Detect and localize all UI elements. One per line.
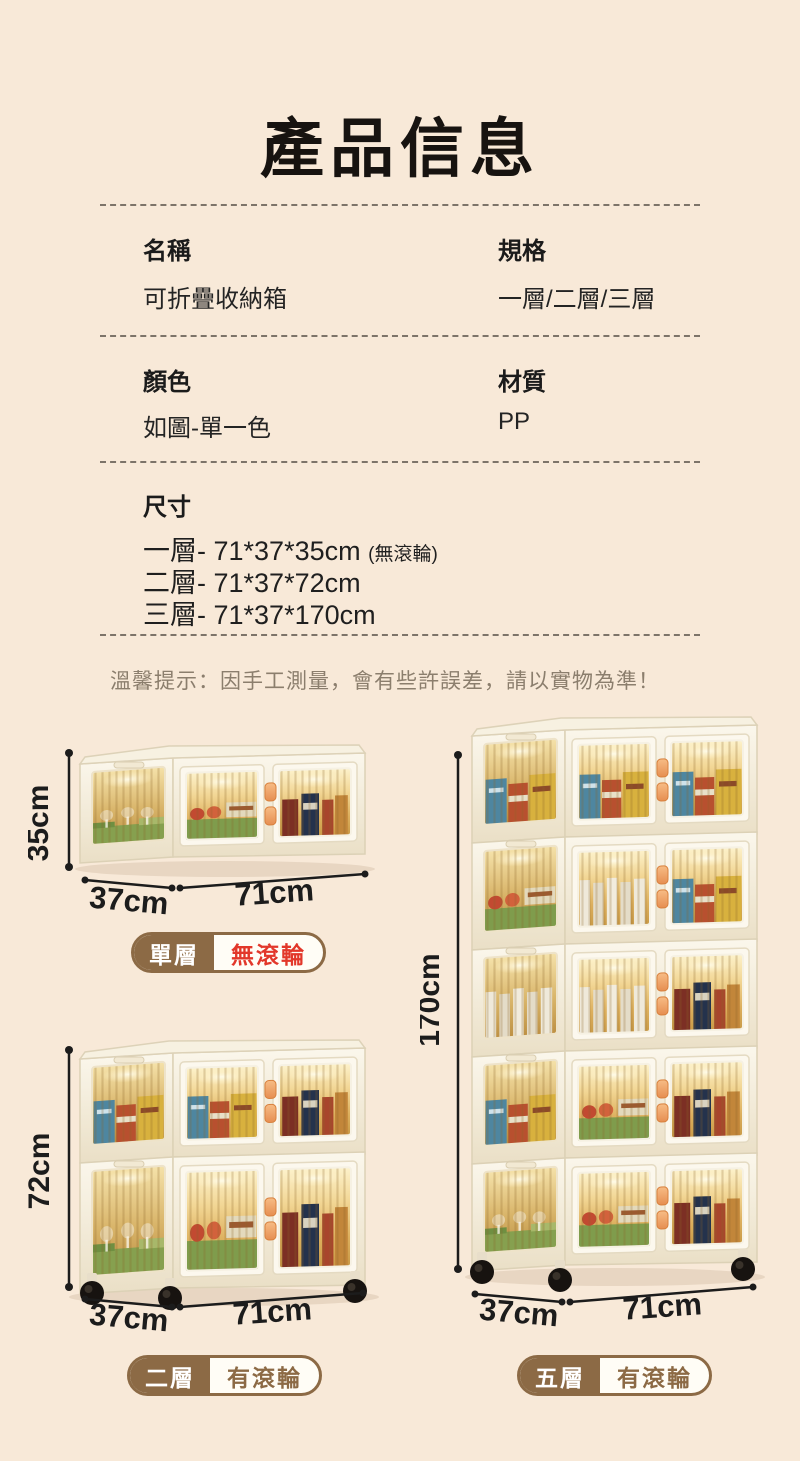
height-dimension-label: 35cm xyxy=(28,785,55,862)
box-body xyxy=(80,1048,365,1294)
separator xyxy=(100,461,700,463)
height-dimension-label: 72cm xyxy=(28,1133,56,1210)
name-label: 名稱 xyxy=(143,231,191,266)
product-info-page: 產品信息 名稱 可折疊收納箱 規格 一層/二層/三層 顏色 如圖-單一色 材質 … xyxy=(0,0,800,1461)
separator xyxy=(100,634,700,636)
five-layer-box-illustration: 170cm 37cm 71cm xyxy=(420,715,800,1355)
badge-wheel-label: 有滾輪 xyxy=(210,1358,319,1393)
badge-single-layer: 單層 無滾輪 xyxy=(131,932,326,973)
depth-dimension: 37cm xyxy=(472,1291,566,1334)
height-dimension: 170cm xyxy=(420,751,462,1273)
badge-wheel-label: 有滾輪 xyxy=(600,1358,709,1393)
spec-value: 一層/二層/三層 xyxy=(498,279,655,314)
badge-wheel-label: 無滾輪 xyxy=(214,935,323,970)
box-shadow xyxy=(465,1268,765,1286)
width-dimension-label: 71cm xyxy=(231,1291,313,1331)
height-dimension-label: 170cm xyxy=(420,953,446,1046)
page-title: 產品信息 xyxy=(0,98,800,190)
box-shadow xyxy=(75,861,375,877)
badge-two-layer: 二層 有滾輪 xyxy=(127,1355,322,1396)
material-value: PP xyxy=(498,408,530,436)
separator xyxy=(100,335,700,337)
color-value: 如圖-單一色 xyxy=(143,408,271,443)
two-layer-box-illustration: 72cm 37cm 71cm xyxy=(28,1035,448,1343)
depth-dimension-label: 37cm xyxy=(88,880,170,922)
badge-tier-label: 五層 xyxy=(520,1358,600,1393)
box-body xyxy=(472,725,757,1271)
badge-five-layer: 五層 有滾輪 xyxy=(517,1355,712,1396)
single-layer-box-illustration: 35cm 37cm 71cm xyxy=(28,728,448,933)
separator xyxy=(100,204,700,206)
depth-dimension: 37cm xyxy=(82,1296,176,1339)
figure-two-layer: 72cm 37cm 71cm xyxy=(28,1035,448,1343)
name-value: 可折疊收納箱 xyxy=(143,279,287,314)
depth-dimension-label: 37cm xyxy=(88,1297,170,1339)
depth-dimension-label: 37cm xyxy=(478,1292,560,1334)
box-body xyxy=(80,753,365,863)
size-label: 尺寸 xyxy=(143,487,191,522)
badge-tier-label: 二層 xyxy=(130,1358,210,1393)
height-dimension: 35cm xyxy=(28,749,73,871)
width-dimension-label: 71cm xyxy=(233,872,315,912)
measurement-tip: 溫馨提示：因手工測量，會有些許誤差，請以實物為準！ xyxy=(110,665,660,695)
height-dimension: 72cm xyxy=(28,1046,73,1291)
figure-five-layer: 170cm 37cm 71cm xyxy=(420,715,800,1355)
size-line-3: 三層- 71*37*170cm xyxy=(143,593,376,632)
material-label: 材質 xyxy=(498,362,546,397)
color-label: 顏色 xyxy=(143,362,191,397)
depth-dimension: 37cm xyxy=(82,877,176,922)
figure-single-layer: 35cm 37cm 71cm xyxy=(28,728,448,933)
spec-label: 規格 xyxy=(498,231,546,266)
size-line-1-note: (無滾輪) xyxy=(368,544,438,565)
width-dimension: 71cm xyxy=(567,1284,757,1327)
width-dimension-label: 71cm xyxy=(621,1286,703,1326)
badge-tier-label: 單層 xyxy=(134,935,214,970)
